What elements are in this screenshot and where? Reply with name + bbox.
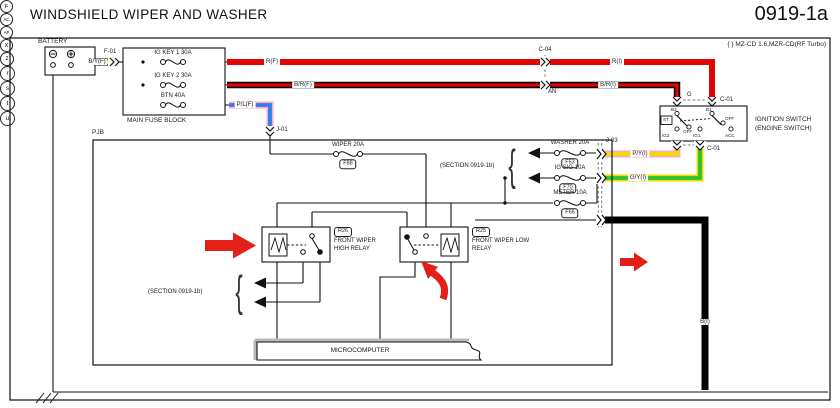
- red-arrow-ground: [620, 253, 648, 272]
- wire-label-bi: B(I): [698, 319, 712, 325]
- red-arrow-high-relay: [205, 233, 256, 259]
- main-fuse-block-box: [123, 48, 225, 115]
- ignition-switch-name-1: IGNITION SWITCH: [755, 117, 811, 124]
- wire-label-g: G: [687, 92, 692, 98]
- ignition-switch-name-2: (ENGINE SWITCH): [755, 126, 812, 133]
- igsig-fuse-label: IG SIG 10A: [555, 165, 586, 171]
- fuse-label-igkey1: IG KEY 1 30A: [154, 50, 191, 56]
- page-title: WINDSHIELD WIPER AND WASHER: [30, 8, 268, 22]
- wiper-fuse-ref: F88: [339, 159, 356, 169]
- relay-low-ref: R25: [472, 227, 490, 237]
- meter-fuse-label: METER 10A: [553, 190, 586, 196]
- connector-label-j01: J-01: [276, 127, 288, 133]
- main-fuse-block-label: MAIN FUSE BLOCK: [127, 118, 186, 125]
- wiring-diagram-page: WINDSHIELD WIPER AND WASHER 0919-1a { } …: [0, 0, 840, 408]
- meter-fuse-ref: F66: [561, 208, 578, 218]
- switch-terminal-ig2: IG2: [662, 134, 669, 139]
- relay-high-name-1: FRONT WIPER: [334, 238, 376, 244]
- battery-terminal-pos: [69, 63, 74, 68]
- wire-label-byf: B/Y(F): [86, 59, 107, 65]
- battery-terminal-neg: [51, 63, 56, 68]
- switch-terminal-ig1: IG1: [693, 134, 700, 139]
- connector-label-f01: F-01: [104, 49, 116, 55]
- connector-label-c01-bottom: C-01: [707, 146, 720, 152]
- washer-fuse-label: WASHER 20A: [551, 140, 589, 146]
- switch-terminal-b1: B1: [706, 108, 712, 113]
- section-right-brace: {: [508, 144, 515, 188]
- connector-label-c01-top: C-01: [720, 97, 733, 103]
- fuse-label-igkey2: IG KEY 2 30A: [154, 73, 191, 79]
- switch-position-off-left: OFF: [683, 130, 692, 135]
- page-code: 0919-1a: [755, 4, 828, 24]
- switch-position-off-right: OFF: [725, 117, 734, 122]
- wire-label-plf: P/L(F): [235, 102, 256, 108]
- battery-label: BATTERY: [38, 39, 67, 46]
- ground-icon: [36, 393, 58, 403]
- connector-label-c04: C-04: [538, 47, 551, 53]
- wire-label-ri: R(I): [610, 59, 624, 65]
- wire-label-an: AN: [548, 89, 556, 95]
- microcomputer-label: MICROCOMPUTER: [331, 348, 390, 355]
- relay-low-name-2: RELAY: [472, 246, 491, 252]
- wire-label-bri: B/R(I): [598, 82, 618, 88]
- wiper-fuse-label: WIPER 20A: [332, 142, 364, 148]
- fuse-label-btn: BTN 40A: [161, 93, 185, 99]
- section-right-label: (SECTION 0919-1b): [440, 163, 494, 169]
- relay-high-ref: R26: [334, 227, 352, 237]
- switch-position-st: ST: [663, 118, 669, 123]
- wire-label-rf: R(F): [264, 59, 280, 65]
- switch-terminal-acc: ACC: [725, 134, 735, 139]
- switch-terminal-b2: B2: [671, 108, 677, 113]
- connector-label-j03: J-03: [606, 138, 618, 144]
- wire-label-brf: B/R(F): [292, 82, 314, 88]
- red-arrow-low-relay-shaft: [430, 271, 445, 299]
- pjb-box: [93, 140, 612, 365]
- relay-low-name-1: FRONT WIPER LOW: [472, 238, 529, 244]
- pjb-label: PJB: [92, 130, 104, 137]
- wire-label-gyi: G/Y(I): [628, 175, 648, 181]
- section-left-brace: {: [235, 270, 242, 314]
- wiring-diagram-canvas: [0, 0, 840, 408]
- relay-high-name-2: HIGH RELAY: [334, 246, 370, 252]
- section-left-label: (SECTION 0919-1b): [148, 289, 202, 295]
- wire-label-pyi: P/Y(I): [630, 151, 649, 157]
- variant-note: { } MZ-CD 1.6,MZR-CD(RF Turbo): [727, 42, 826, 49]
